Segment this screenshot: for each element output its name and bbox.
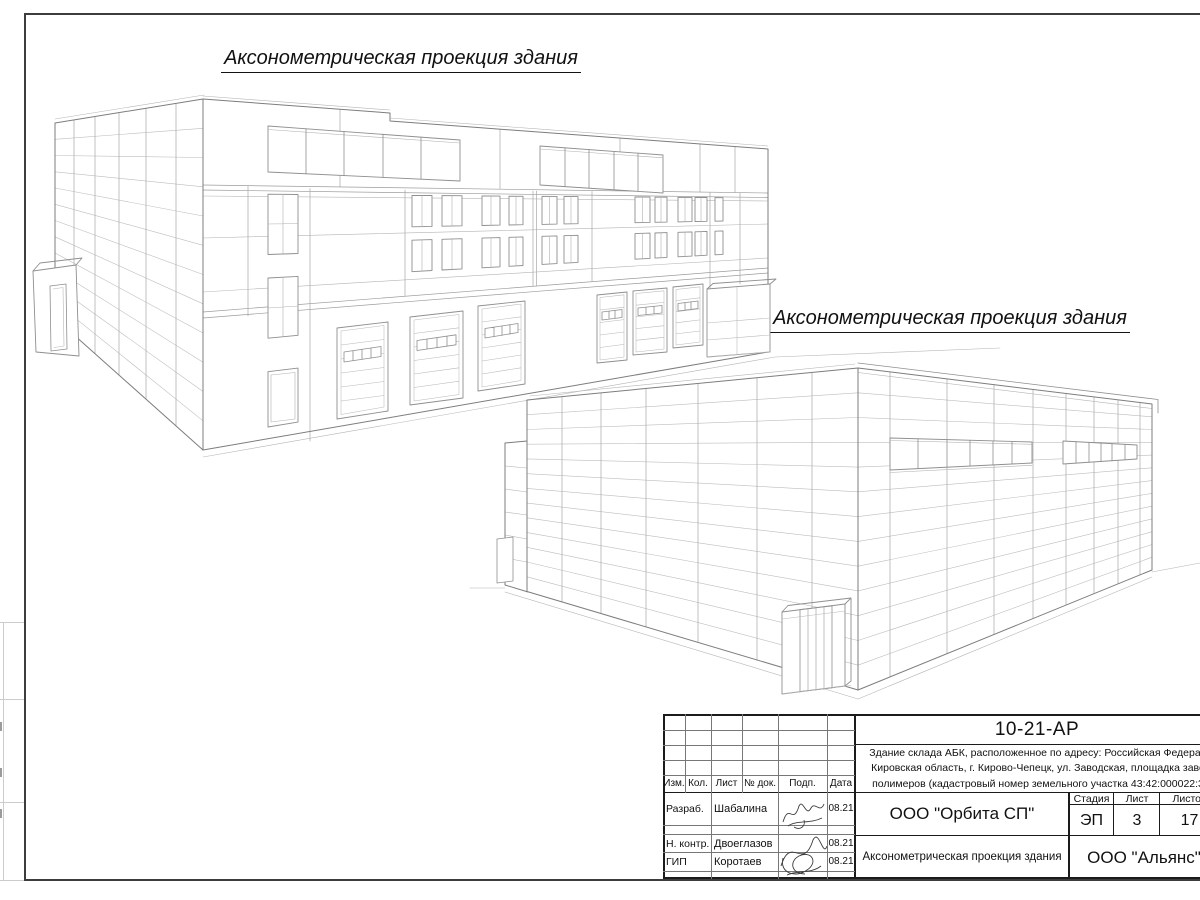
- col-header-izm: Изм.: [663, 775, 685, 792]
- stamp-sheet-title: Аксонометрическая проекция здания: [855, 836, 1069, 879]
- sheets-total: 17: [1160, 805, 1200, 836]
- project-description: Здание склада АБК, расположенное по адре…: [859, 745, 1200, 792]
- row-gip-date: 08.21: [827, 853, 855, 871]
- sheet-label: Лист: [1114, 793, 1160, 805]
- col-header-podp: Подп.: [778, 775, 827, 792]
- col-header-list: Лист: [711, 775, 742, 792]
- row-nkontr-name: Двоеглазов: [711, 835, 781, 853]
- col-header-doc: № док.: [742, 775, 778, 792]
- stage-label: Стадия: [1069, 793, 1114, 805]
- row-nkontr-date: 08.21: [827, 835, 855, 853]
- project-description-line3: полимеров (кадастровый номер земельного …: [859, 777, 1200, 792]
- building-1-wireframe: [33, 95, 1000, 457]
- row-nkontr-role: Н. контр.: [663, 835, 714, 853]
- col-header-kol: Кол.: [685, 775, 711, 792]
- client-company: ООО "Альянс": [1069, 836, 1200, 879]
- building-2-wireframe: [470, 363, 1200, 699]
- project-description-line2: Кировская область, г. Кирово-Чепецк, ул.…: [859, 761, 1200, 776]
- sheets-label: Листов: [1160, 793, 1200, 805]
- sheet-number: 3: [1114, 805, 1160, 836]
- row-gip-role: ГИП: [663, 853, 714, 871]
- col-header-data: Дата: [827, 775, 855, 792]
- stage-value: ЭП: [1069, 805, 1114, 836]
- row-razrab-date: 08.21: [827, 800, 855, 818]
- designer-company: ООО "Орбита СП": [855, 792, 1069, 835]
- title-block: Изм. Кол. Лист № док. Подп. Дата Разраб.…: [663, 714, 1200, 879]
- signature-razrab: [780, 796, 826, 832]
- row-razrab-name: Шабалина: [711, 800, 781, 818]
- row-gip-name: Коротаев: [711, 853, 781, 871]
- row-razrab-role: Разраб.: [663, 800, 714, 818]
- drawing-sheet: Аксонометрическая проекция здания Аксоно…: [0, 0, 1200, 900]
- project-description-line1: Здание склада АБК, расположенное по адре…: [859, 746, 1200, 761]
- document-code: 10-21-АР: [855, 714, 1200, 745]
- signature-nkontr-gip: [777, 830, 827, 878]
